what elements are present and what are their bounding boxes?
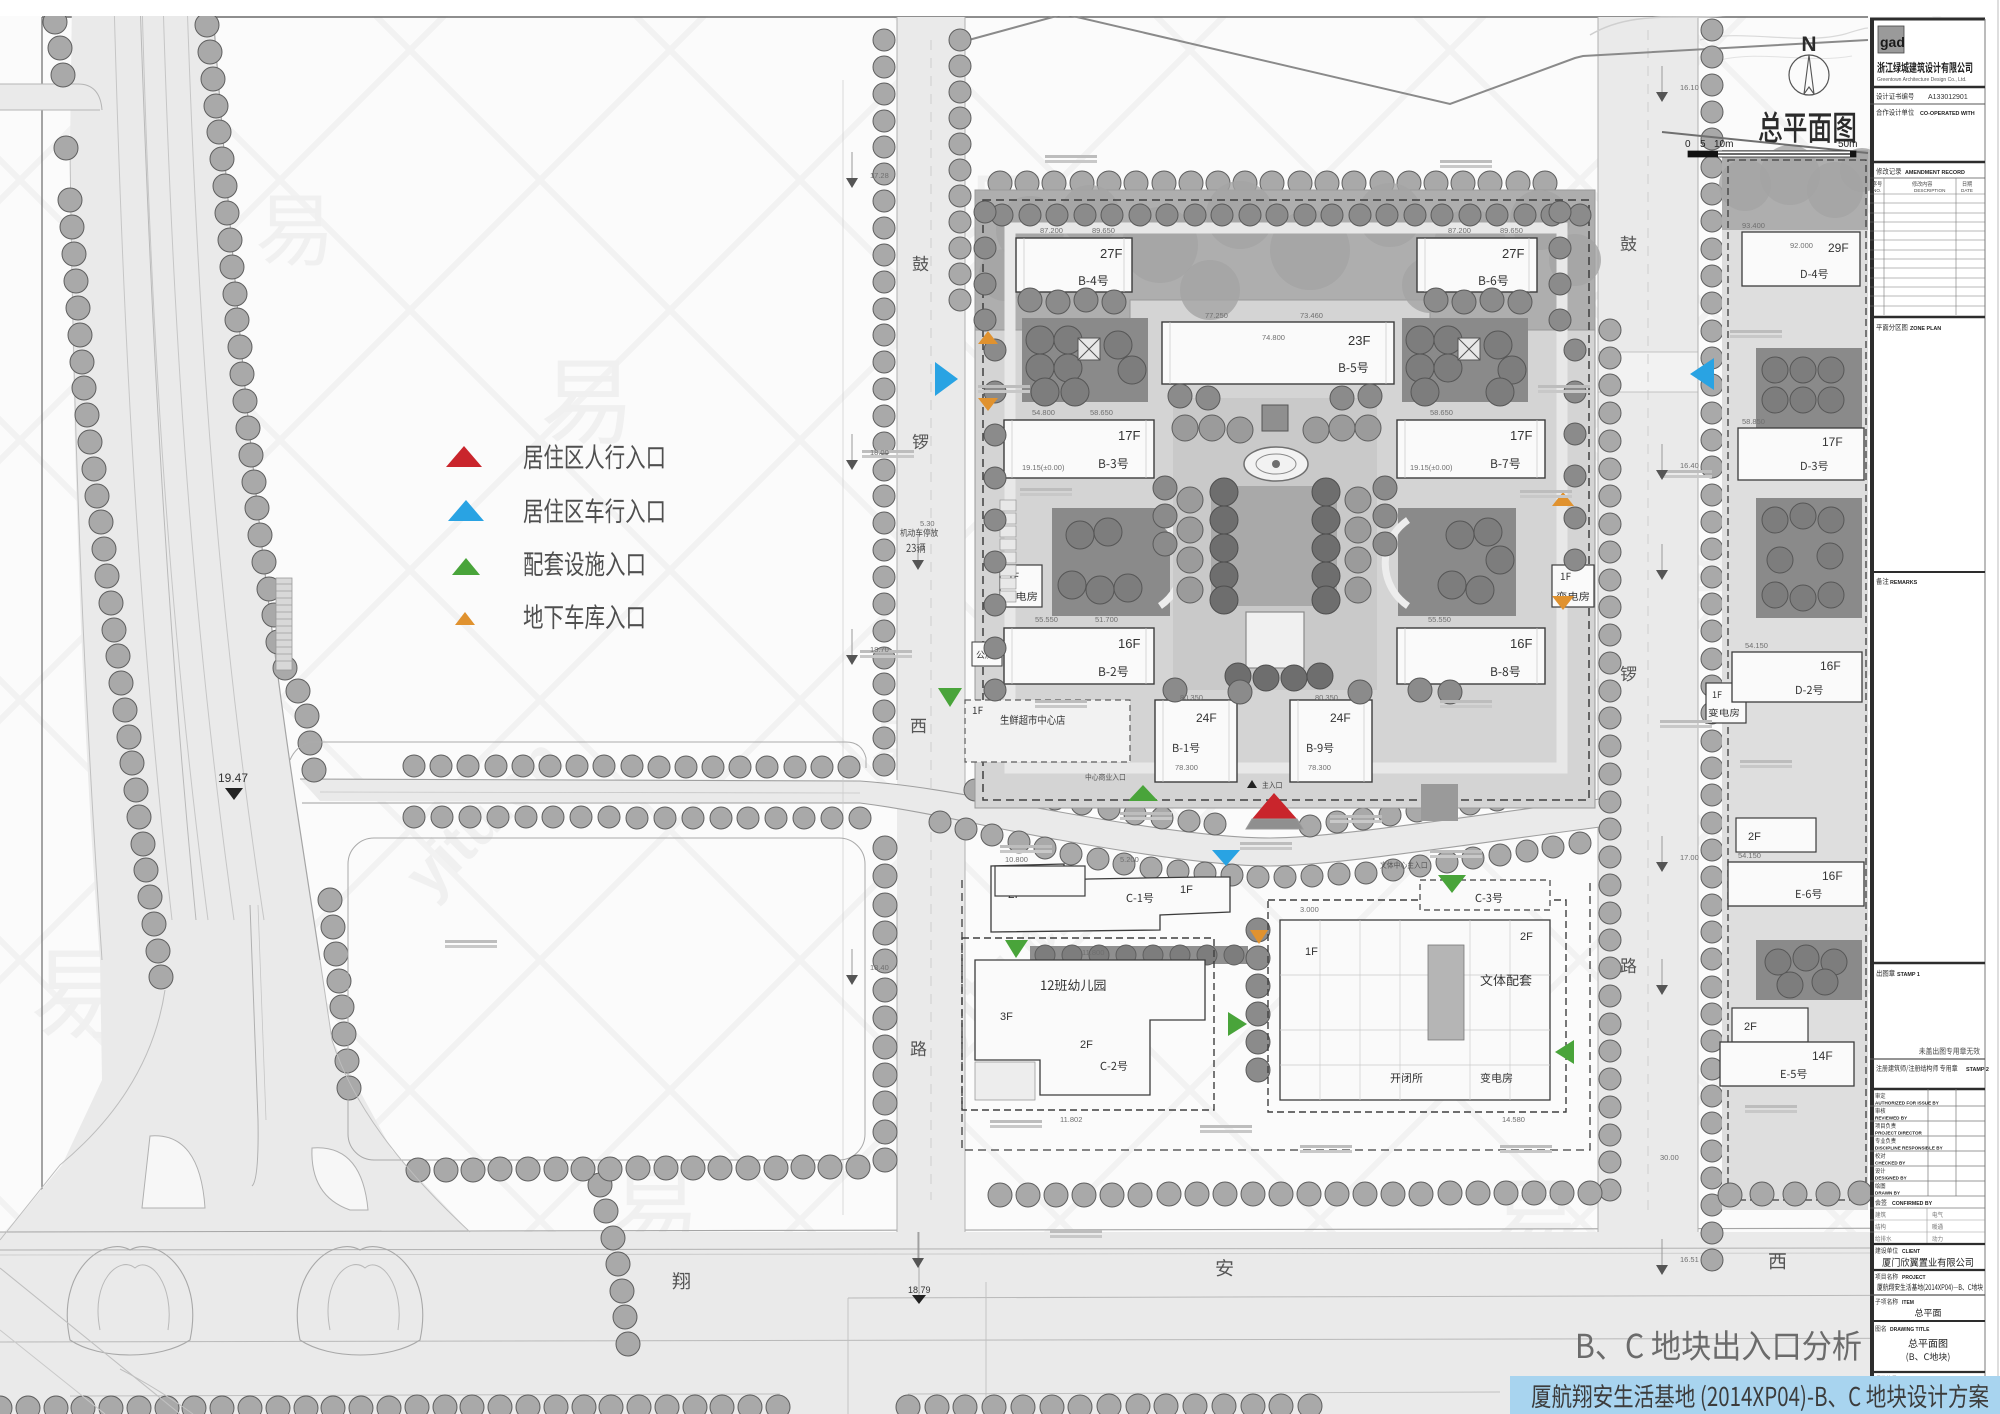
svg-text:PROJECT: PROJECT <box>1902 1275 1926 1281</box>
svg-text:54.150: 54.150 <box>1738 851 1761 860</box>
svg-text:80.350: 80.350 <box>1180 693 1203 702</box>
svg-text:58.650: 58.650 <box>1090 408 1113 417</box>
svg-text:REMARKS: REMARKS <box>1890 580 1918 586</box>
svg-text:AMENDMENT RECORD: AMENDMENT RECORD <box>1905 170 1965 176</box>
svg-text:0: 0 <box>1685 139 1691 150</box>
svg-text:92.000: 92.000 <box>1790 241 1813 250</box>
svg-text:5.30: 5.30 <box>920 519 935 528</box>
svg-text:DISCIPLINE RESPONSIBLE BY: DISCIPLINE RESPONSIBLE BY <box>1875 1146 1943 1151</box>
svg-text:55.550: 55.550 <box>1428 615 1451 624</box>
svg-text:16.40: 16.40 <box>1680 461 1699 470</box>
svg-text:23F: 23F <box>1348 333 1370 348</box>
svg-text:16.10: 16.10 <box>1680 83 1699 92</box>
svg-text:5.200: 5.200 <box>1120 855 1139 864</box>
svg-text:gad: gad <box>1880 34 1905 50</box>
svg-text:93.400: 93.400 <box>1742 221 1765 230</box>
svg-text:27F: 27F <box>1502 246 1524 261</box>
svg-text:CO-OPERATED WITH: CO-OPERATED WITH <box>1920 111 1975 117</box>
svg-text:A133012901: A133012901 <box>1928 94 1968 101</box>
svg-text:30.00: 30.00 <box>1660 1153 1679 1162</box>
svg-text:STAMP 2: STAMP 2 <box>1966 1067 1989 1073</box>
svg-text:10m: 10m <box>1714 139 1733 150</box>
svg-text:18.00: 18.00 <box>870 448 889 457</box>
svg-text:NO.: NO. <box>1873 188 1881 193</box>
svg-text:16F: 16F <box>1118 636 1140 651</box>
svg-text:51.700: 51.700 <box>1095 615 1118 624</box>
svg-text:DATE: DATE <box>1961 188 1973 193</box>
svg-text:1F: 1F <box>1305 946 1318 958</box>
svg-text:16F: 16F <box>1510 636 1532 651</box>
svg-text:17.28: 17.28 <box>870 171 889 180</box>
svg-text:54.150: 54.150 <box>1745 641 1768 650</box>
svg-text:CLIENT: CLIENT <box>1902 1249 1920 1255</box>
svg-text:16.51: 16.51 <box>1680 1255 1699 1264</box>
svg-text:14.580: 14.580 <box>1502 1115 1525 1124</box>
svg-text:Greentown Architecture Design: Greentown Architecture Design Co., Ltd. <box>1877 77 1967 83</box>
svg-text:3F: 3F <box>1000 1011 1013 1023</box>
svg-text:16F: 16F <box>1822 869 1843 883</box>
svg-text:80.350: 80.350 <box>1315 693 1338 702</box>
svg-text:89.650: 89.650 <box>1092 226 1115 235</box>
svg-text:2F: 2F <box>1748 831 1761 843</box>
svg-text:2F: 2F <box>1520 931 1533 943</box>
svg-text:16F: 16F <box>1820 659 1841 673</box>
svg-text:DESCRIPTION: DESCRIPTION <box>1914 188 1945 193</box>
svg-text:5: 5 <box>1700 139 1706 150</box>
svg-text:CHECKED BY: CHECKED BY <box>1875 1161 1905 1166</box>
svg-text:ZONE PLAN: ZONE PLAN <box>1910 326 1941 332</box>
svg-text:2F: 2F <box>1744 1021 1757 1033</box>
svg-text:87.200: 87.200 <box>1448 226 1471 235</box>
svg-text:58.850: 58.850 <box>1742 417 1765 426</box>
svg-text:24F: 24F <box>1196 711 1217 725</box>
svg-text:1F: 1F <box>1180 884 1193 896</box>
svg-text:17.00: 17.00 <box>1680 853 1699 862</box>
svg-text:19.15(±0.00): 19.15(±0.00) <box>1410 463 1453 472</box>
svg-text:19.47: 19.47 <box>218 771 248 785</box>
svg-text:58.650: 58.650 <box>1430 408 1453 417</box>
svg-text:DRAWING TITLE: DRAWING TITLE <box>1890 1327 1930 1333</box>
svg-text:74.800: 74.800 <box>1262 333 1285 342</box>
svg-text:18.40: 18.40 <box>870 963 889 972</box>
svg-text:19.15(±0.00): 19.15(±0.00) <box>1022 463 1065 472</box>
svg-text:89.650: 89.650 <box>1500 226 1523 235</box>
svg-text:STAMP 1: STAMP 1 <box>1897 972 1920 978</box>
svg-text:18.70: 18.70 <box>870 645 889 654</box>
svg-text:17F: 17F <box>1822 435 1843 449</box>
svg-text:17F: 17F <box>1510 428 1532 443</box>
svg-text:AUTHORIZED FOR ISSUE BY: AUTHORIZED FOR ISSUE BY <box>1875 1101 1939 1106</box>
svg-text:N: N <box>1801 33 1816 56</box>
svg-text:54.800: 54.800 <box>1032 408 1055 417</box>
svg-text:10.800: 10.800 <box>1005 855 1028 864</box>
svg-text:78.300: 78.300 <box>1308 763 1331 772</box>
svg-text:PROJECT DIRECTOR: PROJECT DIRECTOR <box>1875 1131 1923 1136</box>
svg-text:DRAWN BY: DRAWN BY <box>1875 1191 1900 1196</box>
svg-text:ITEM: ITEM <box>1902 1300 1914 1306</box>
svg-text:11.800: 11.800 <box>1082 948 1104 957</box>
svg-text:50m: 50m <box>1838 139 1857 150</box>
svg-text:77.250: 77.250 <box>1205 311 1228 320</box>
svg-text:2F: 2F <box>1080 1039 1093 1051</box>
svg-text:17F: 17F <box>1118 428 1140 443</box>
svg-text:14F: 14F <box>1812 1049 1833 1063</box>
svg-text:REVIEWED BY: REVIEWED BY <box>1875 1116 1907 1121</box>
svg-text:78.300: 78.300 <box>1175 763 1198 772</box>
svg-text:55.550: 55.550 <box>1035 615 1058 624</box>
svg-text:CONFIRMED BY: CONFIRMED BY <box>1892 1201 1933 1207</box>
svg-text:3.000: 3.000 <box>1300 905 1319 914</box>
svg-text:DESIGNED BY: DESIGNED BY <box>1875 1176 1907 1181</box>
svg-text:11.802: 11.802 <box>1060 1115 1082 1124</box>
svg-text:27F: 27F <box>1100 246 1122 261</box>
svg-text:24F: 24F <box>1330 711 1351 725</box>
svg-text:29F: 29F <box>1828 241 1849 255</box>
svg-text:87.200: 87.200 <box>1040 226 1063 235</box>
svg-text:73.460: 73.460 <box>1300 311 1323 320</box>
